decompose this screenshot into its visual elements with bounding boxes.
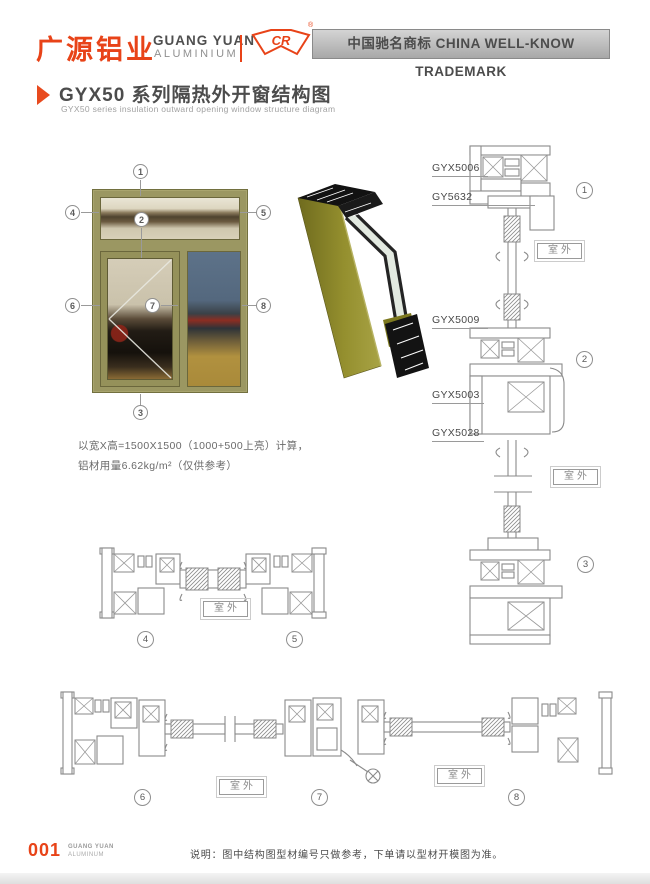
profile-label-gy5632: GY5632	[432, 191, 472, 203]
company-subtitle-english: ALUMINIUM	[154, 48, 238, 60]
callout-6: 6	[65, 298, 80, 313]
section-number-4: 4	[137, 631, 154, 648]
spec-line-1: 以宽X高=1500X1500（1000+500上亮）计算，	[78, 436, 308, 456]
outdoor-label-1: 室外	[537, 243, 582, 259]
callout-8: 8	[256, 298, 271, 313]
title-arrow-icon	[37, 85, 50, 105]
callout-5: 5	[256, 205, 271, 220]
window-opening-sash	[100, 251, 180, 387]
callout-1: 1	[133, 164, 148, 179]
outdoor-label-3: 室外	[203, 601, 248, 617]
section-number-5: 5	[286, 631, 303, 648]
callout-3: 3	[133, 405, 148, 420]
profile-3d-render	[283, 172, 443, 397]
leader-line-4	[81, 212, 99, 213]
footer-brand-line1: GUANG YUAN	[68, 844, 114, 850]
leader-line-3	[140, 394, 141, 405]
window-top-pane-photo	[100, 197, 240, 240]
leader-line-8	[242, 305, 256, 306]
window-sash-photo	[107, 258, 173, 380]
leader-line-1	[140, 180, 141, 196]
horizontal-section-drawing-bottom	[58, 688, 618, 786]
profile-leader-gy5632	[432, 205, 535, 206]
spec-note: 以宽X高=1500X1500（1000+500上亮）计算， 铝材用量6.62kg…	[78, 436, 308, 476]
callout-2: 2	[134, 212, 149, 227]
outdoor-label-2: 室外	[553, 469, 598, 485]
catalog-page: 广源铝业 GUANG YUAN ALUMINIUM CR ® 中国驰名商标 CH…	[0, 0, 650, 884]
profile-leader-gyx5003	[432, 403, 484, 404]
profile-leader-gyx5028	[432, 441, 484, 442]
section-number-3: 3	[577, 556, 594, 573]
window-fixed-pane-photo	[187, 251, 241, 387]
section-number-1: 1	[576, 182, 593, 199]
profile-leader-gyx5006	[432, 176, 488, 177]
registered-mark: ®	[308, 22, 313, 29]
section-number-7: 7	[311, 789, 328, 806]
profile-label-gyx5028: GYX5028	[432, 427, 480, 439]
outdoor-label-5: 室外	[437, 768, 482, 784]
footer-note: 说明：图中结构图型材编号只做参考，下单请以型材开模图为准。	[190, 846, 503, 861]
callout-7: 7	[145, 298, 160, 313]
callout-4: 4	[65, 205, 80, 220]
profile-label-gyx5009: GYX5009	[432, 314, 480, 326]
opening-direction-lines	[108, 259, 172, 379]
profile-label-gyx5006: GYX5006	[432, 162, 480, 174]
section-number-2: 2	[576, 351, 593, 368]
leader-line-5	[240, 212, 256, 213]
section-number-8: 8	[508, 789, 525, 806]
company-logo-icon: CR ®	[250, 26, 316, 62]
trademark-banner: 中国驰名商标 CHINA WELL-KNOW TRADEMARK	[312, 29, 610, 59]
spec-line-2: 铝材用量6.62kg/m²（仅供参考）	[78, 456, 308, 476]
leader-line-6	[81, 305, 100, 306]
logo-mark-letters: CR	[272, 33, 291, 48]
page-title: GYX50 系列隔热外开窗结构图	[59, 80, 332, 107]
window-illustration	[92, 189, 248, 393]
profile-leader-gyx5009	[432, 328, 488, 329]
footer-brand-line2: ALUMINUM	[68, 852, 104, 858]
company-name-chinese: 广源铝业	[36, 28, 156, 67]
page-subtitle: GYX50 series insulation outward opening …	[61, 104, 335, 114]
section-number-6: 6	[134, 789, 151, 806]
leader-line-2	[141, 228, 142, 258]
page-bottom-edge	[0, 873, 650, 884]
logo-divider	[240, 35, 242, 62]
leader-line-7	[161, 305, 178, 306]
profile-label-gyx5003: GYX5003	[432, 389, 480, 401]
page-number: 001	[28, 840, 61, 861]
outdoor-label-4: 室外	[219, 779, 264, 795]
